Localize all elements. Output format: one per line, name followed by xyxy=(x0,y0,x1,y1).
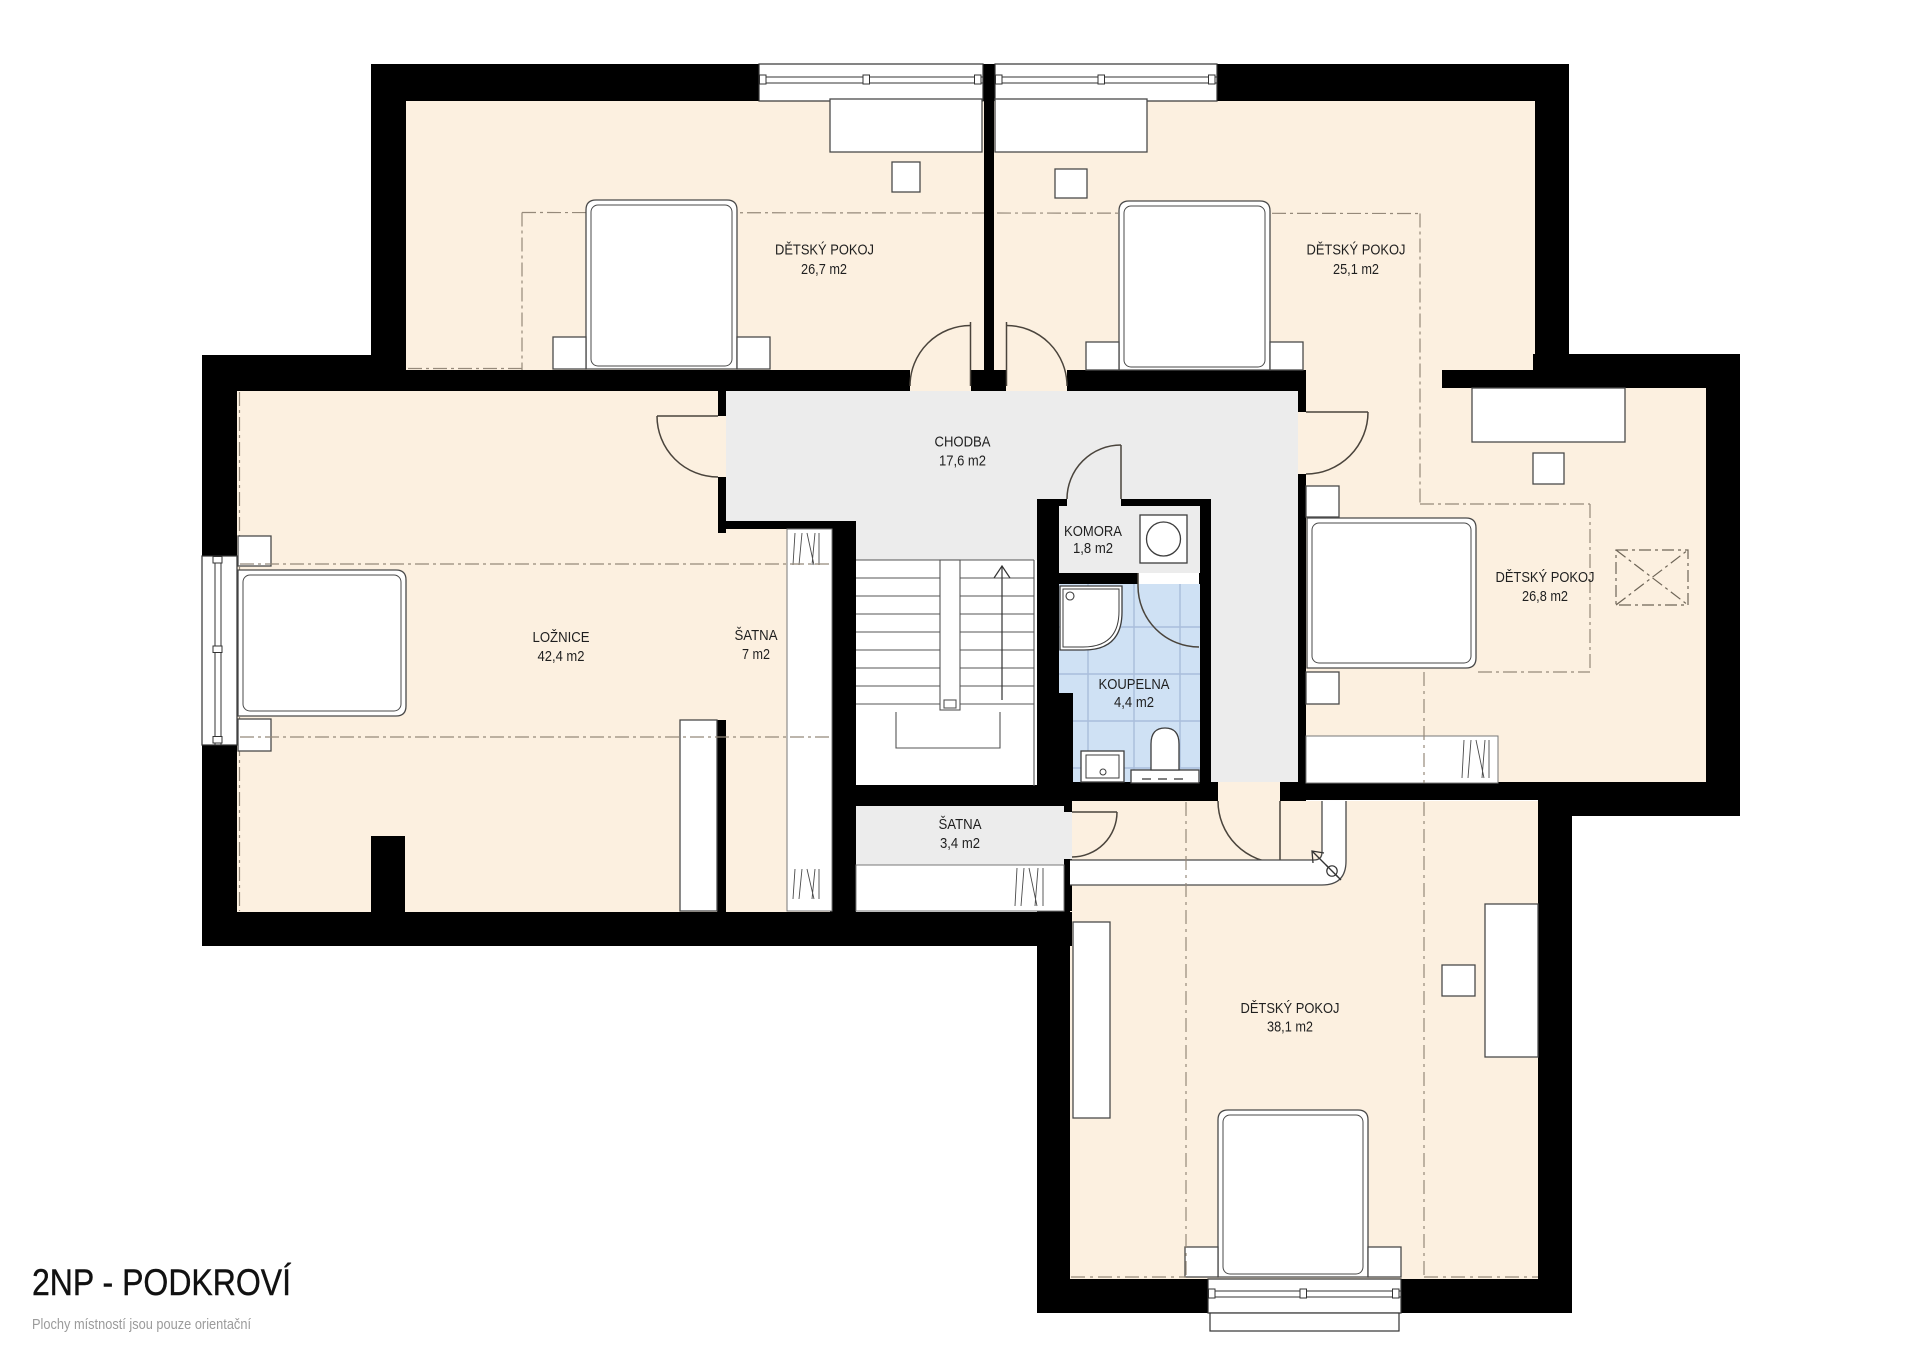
svg-text:DĚTSKÝ POKOJ: DĚTSKÝ POKOJ xyxy=(1307,242,1406,259)
svg-text:2NP - PODKROVÍ: 2NP - PODKROVÍ xyxy=(32,1262,292,1303)
svg-text:Plochy místností jsou pouze or: Plochy místností jsou pouze orientační xyxy=(32,1317,251,1333)
svg-text:DĚTSKÝ POKOJ: DĚTSKÝ POKOJ xyxy=(1496,569,1595,586)
svg-text:DĚTSKÝ POKOJ: DĚTSKÝ POKOJ xyxy=(775,242,874,259)
svg-text:ŠATNA: ŠATNA xyxy=(735,627,778,644)
svg-text:3,4 m2: 3,4 m2 xyxy=(940,836,980,852)
svg-text:CHODBA: CHODBA xyxy=(935,435,991,451)
svg-text:ŠATNA: ŠATNA xyxy=(939,816,982,833)
svg-text:42,4 m2: 42,4 m2 xyxy=(538,649,585,665)
svg-text:KOUPELNA: KOUPELNA xyxy=(1099,677,1170,693)
svg-text:1,8 m2: 1,8 m2 xyxy=(1073,541,1113,557)
svg-text:LOŽNICE: LOŽNICE xyxy=(533,629,590,646)
svg-text:26,7 m2: 26,7 m2 xyxy=(801,262,847,278)
svg-text:17,6 m2: 17,6 m2 xyxy=(939,454,986,470)
svg-text:4,4 m2: 4,4 m2 xyxy=(1114,695,1154,711)
svg-text:7 m2: 7 m2 xyxy=(742,647,770,663)
svg-text:DĚTSKÝ POKOJ: DĚTSKÝ POKOJ xyxy=(1241,1000,1340,1017)
svg-text:26,8 m2: 26,8 m2 xyxy=(1522,589,1568,605)
svg-text:25,1 m2: 25,1 m2 xyxy=(1333,262,1379,278)
svg-text:38,1 m2: 38,1 m2 xyxy=(1267,1020,1313,1036)
svg-text:KOMORA: KOMORA xyxy=(1064,524,1122,540)
